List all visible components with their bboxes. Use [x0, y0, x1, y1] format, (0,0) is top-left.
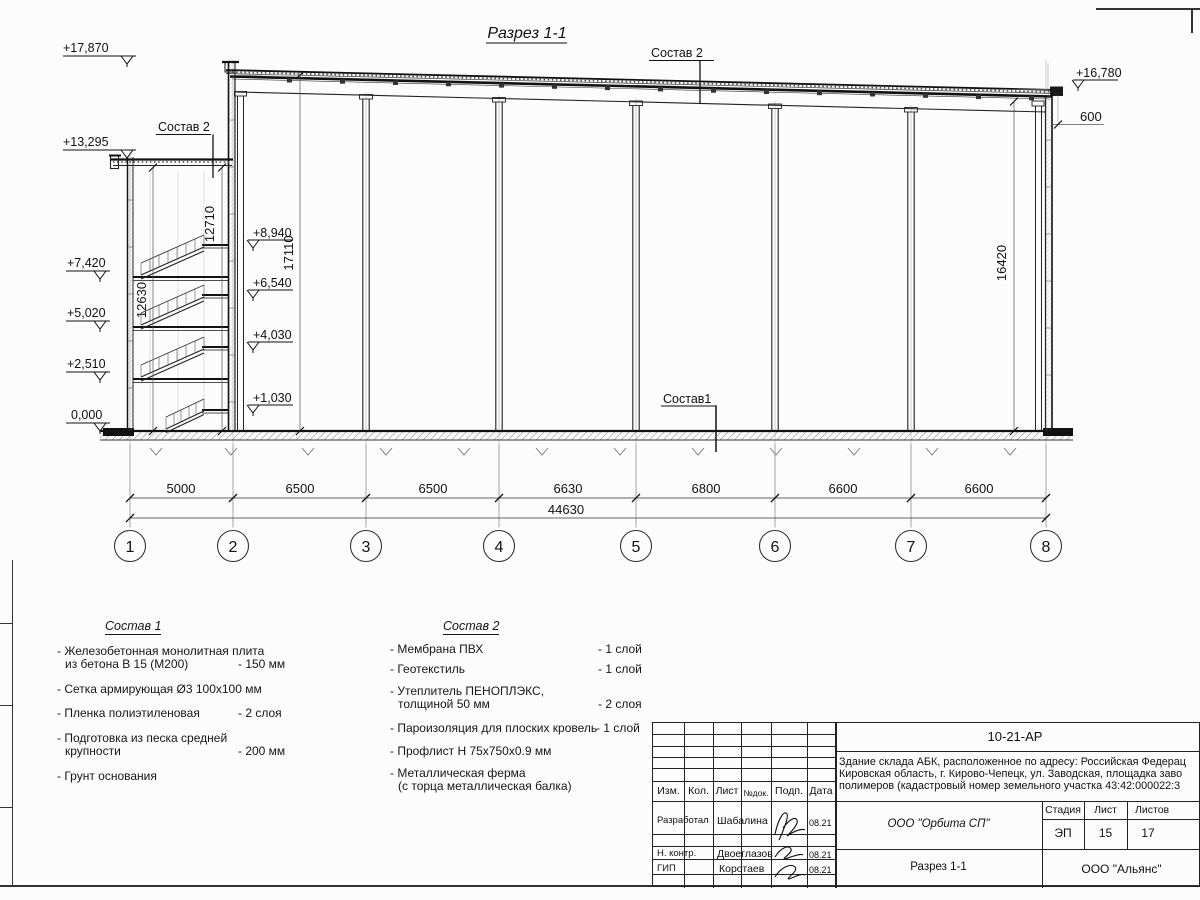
project-description: полимеров (кадастровый номер земельного … — [839, 780, 1180, 792]
elevation-0000: 0,000 — [71, 408, 102, 422]
axis-8: 8 — [1042, 539, 1051, 556]
sostav2-canopy-label: Состав 2 — [158, 120, 210, 134]
frame-tick — [0, 623, 12, 624]
list-item-value: - 1 слой — [598, 663, 642, 676]
composition1-title: Состав 1 — [105, 620, 161, 635]
row-ncontrol-name: Двоеглазов — [717, 848, 773, 860]
list-item: - Сетка армирующая Ø3 100х100 мм — [57, 683, 262, 696]
sheet-label: Лист — [1084, 804, 1127, 816]
col-kol: Кол. — [684, 785, 713, 797]
axis-1: 1 — [126, 539, 135, 556]
row-developed-role: Разработал — [657, 815, 709, 826]
axis-5: 5 — [632, 539, 641, 556]
composition1-list: Состав 1 - Железобетонная монолитная пли… — [57, 618, 357, 798]
sheet-number: 15 — [1084, 826, 1127, 840]
col-ndok: №док. — [741, 788, 771, 798]
grid-bubbles: 1 2 3 4 5 6 7 8 — [115, 531, 1062, 562]
span-dim-6: 6600 — [829, 481, 858, 496]
list-item-value: - 2 слоя — [598, 698, 642, 711]
frame-tick — [0, 807, 12, 808]
elevation-17870: +17,870 — [63, 41, 109, 55]
axis-6: 6 — [771, 539, 780, 556]
list-item: крупности — [65, 745, 121, 758]
col-list: Лист — [713, 785, 741, 797]
span-dim-4: 6630 — [554, 481, 583, 496]
grid-axis-lines — [130, 60, 1046, 528]
drawing-sheet: { "section": { "title": "Разрез 1-1", "c… — [0, 0, 1200, 900]
ground-break-marks — [150, 448, 1016, 455]
list-item-value: - 200 мм — [238, 745, 285, 758]
stair-flights — [141, 235, 204, 433]
row-gip-date: 08.21 — [809, 865, 832, 875]
elevation-8940: +8,940 — [253, 226, 292, 240]
sheet-title: Разрез 1-1 — [835, 861, 1042, 873]
dim-16420: 16420 — [994, 245, 1009, 281]
staircase-block — [109, 156, 233, 433]
list-item-value: - 150 мм — [238, 658, 285, 671]
total-dim: 44630 — [548, 502, 584, 517]
row-developed-name: Шабалина — [717, 815, 768, 827]
list-item: - Геотекстиль — [390, 663, 465, 676]
list-item-value: - 1 слой — [596, 722, 640, 735]
list-item: - Пароизоляция для плоских кровель — [390, 722, 597, 735]
axis-7: 7 — [907, 539, 916, 556]
vertical-dimensions: 12630 12710 17110 16420 600 — [134, 63, 1104, 435]
company-name: ООО "Альянс" — [1042, 862, 1200, 876]
project-description: Здание склада АБК, расположенное по адре… — [839, 756, 1186, 768]
horizontal-dimensions: 5000 6500 6500 6630 6800 6600 6600 44630 — [126, 444, 1050, 527]
elevation-7420: +7,420 — [67, 256, 106, 270]
sheet-frame-left — [12, 560, 13, 886]
elevation-4030: +4,030 — [253, 328, 292, 342]
axis2-wall — [229, 62, 247, 431]
section-title-label: Разрез 1-1 — [487, 25, 566, 42]
sheet-frame-top-right — [1096, 8, 1200, 10]
span-dim-2: 6500 — [286, 481, 315, 496]
elevation-6540: +6,540 — [253, 276, 292, 290]
span-dim-1: 5000 — [167, 481, 196, 496]
list-item: - Мембрана ПВХ — [390, 643, 483, 656]
project-description: Кировская область, г. Кирово-Чепецк, ул.… — [839, 768, 1182, 780]
elevation-mark-right: +16,780 — [1072, 66, 1122, 91]
sheet-frame-top-right-v — [1191, 8, 1193, 33]
row-ncontrol-date: 08.21 — [809, 850, 832, 860]
org-name: ООО "Орбита СП" — [835, 818, 1042, 830]
list-item: (с торца металлическая балка) — [398, 780, 572, 793]
sheets-label: Листов — [1135, 804, 1169, 816]
dim-12710: 12710 — [202, 206, 217, 242]
list-item: - Грунт основания — [57, 770, 157, 783]
col-podp: Подп. — [771, 785, 807, 797]
dim-17110: 17110 — [281, 235, 296, 270]
signature-icon — [771, 843, 807, 885]
composition2-list: Состав 2 - Мембрана ПВХ - 1 слой - Геоте… — [390, 618, 690, 798]
elevation-marks-left: +17,870 +13,295 +7,420 +5,020 +2,510 0,0… — [63, 41, 136, 434]
columns — [360, 95, 918, 432]
elevation-5020: +5,020 — [67, 306, 106, 320]
row-ncontrol-role: Н. контр. — [657, 848, 696, 859]
col-izm: Изм. — [653, 785, 684, 797]
list-item: - Профлист Н 75х750х0.9 мм — [390, 745, 551, 758]
row-gip-role: ГИП — [657, 863, 676, 874]
title-block: Изм. Кол. Лист №док. Подп. Дата Разработ… — [652, 722, 1200, 887]
axis-2: 2 — [229, 539, 238, 556]
axis-4: 4 — [495, 539, 504, 556]
ground-slab — [100, 428, 1073, 455]
row-developed-date: 08.21 — [809, 818, 832, 828]
frame-tick — [0, 705, 12, 706]
span-dim-7: 6600 — [965, 481, 994, 496]
axis-3: 3 — [362, 539, 371, 556]
dim-600: 600 — [1080, 109, 1102, 124]
composition2-title: Состав 2 — [443, 620, 499, 635]
section-drawing: Разрез 1-1 — [0, 0, 1200, 615]
span-dim-5: 6800 — [692, 481, 721, 496]
signature-icon — [769, 806, 809, 846]
list-item: - Пленка полиэтиленовая — [57, 707, 200, 720]
dim-12630: 12630 — [134, 282, 149, 318]
right-wall — [1032, 93, 1052, 431]
list-item-value: - 2 слоя — [238, 707, 282, 720]
elevation-16780: +16,780 — [1076, 66, 1122, 80]
stage-value: ЭП — [1042, 826, 1084, 840]
elevation-13295: +13,295 — [63, 135, 109, 149]
sostav1-floor-label: Состав1 — [663, 392, 711, 406]
list-item: толщиной 50 мм — [398, 698, 490, 711]
stage-label: Стадия — [1042, 804, 1084, 816]
sostav2-roof-label: Состав 2 — [651, 46, 703, 60]
row-gip-name: Коротаев — [719, 863, 764, 875]
col-data: Дата — [807, 785, 835, 797]
drawing-title: Разрез 1-1 — [486, 25, 567, 43]
list-item: из бетона В 15 (М200) — [65, 658, 188, 671]
doc-number: 10-21-АР — [835, 729, 1195, 744]
span-dim-3: 6500 — [419, 481, 448, 496]
sheets-total: 17 — [1127, 826, 1169, 840]
elevation-2510: +2,510 — [67, 357, 106, 371]
list-item-value: - 1 слой — [598, 643, 642, 656]
elevation-1030: +1,030 — [253, 391, 292, 405]
